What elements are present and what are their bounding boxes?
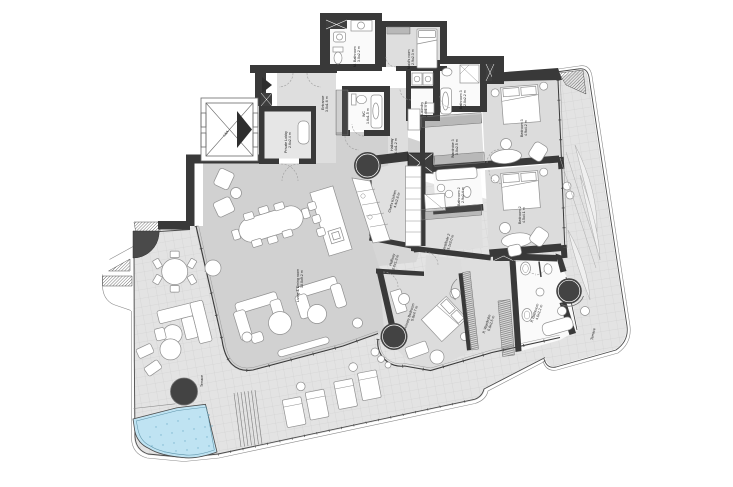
svg-text:2.9x2.3 m: 2.9x2.3 m [411,49,415,65]
svg-text:2.4x1.4 m: 2.4x1.4 m [424,101,428,117]
svg-text:3.0x1.6 m: 3.0x1.6 m [325,96,329,112]
svg-text:2.0x2.2 m: 2.0x2.2 m [463,90,467,106]
svg-text:4.5x4.1 m: 4.5x4.1 m [522,207,526,223]
svg-text:Terrace: Terrace [200,375,204,387]
svg-text:10.0x9.2 m: 10.0x9.2 m [300,270,304,288]
svg-text:1.6x1.5 m: 1.6x1.5 m [366,108,370,124]
svg-text:2.9x2.4 m: 2.9x2.4 m [461,187,465,203]
svg-text:3.0x2.2 m: 3.0x2.2 m [357,46,361,62]
svg-text:2.6x2.4 m: 2.6x2.4 m [288,132,292,148]
svg-text:4.9x4.2 m: 4.9x4.2 m [524,120,528,136]
svg-text:4.4x1.2 m: 4.4x1.2 m [394,138,398,154]
svg-text:3.0x2.5 m: 3.0x2.5 m [455,139,459,155]
